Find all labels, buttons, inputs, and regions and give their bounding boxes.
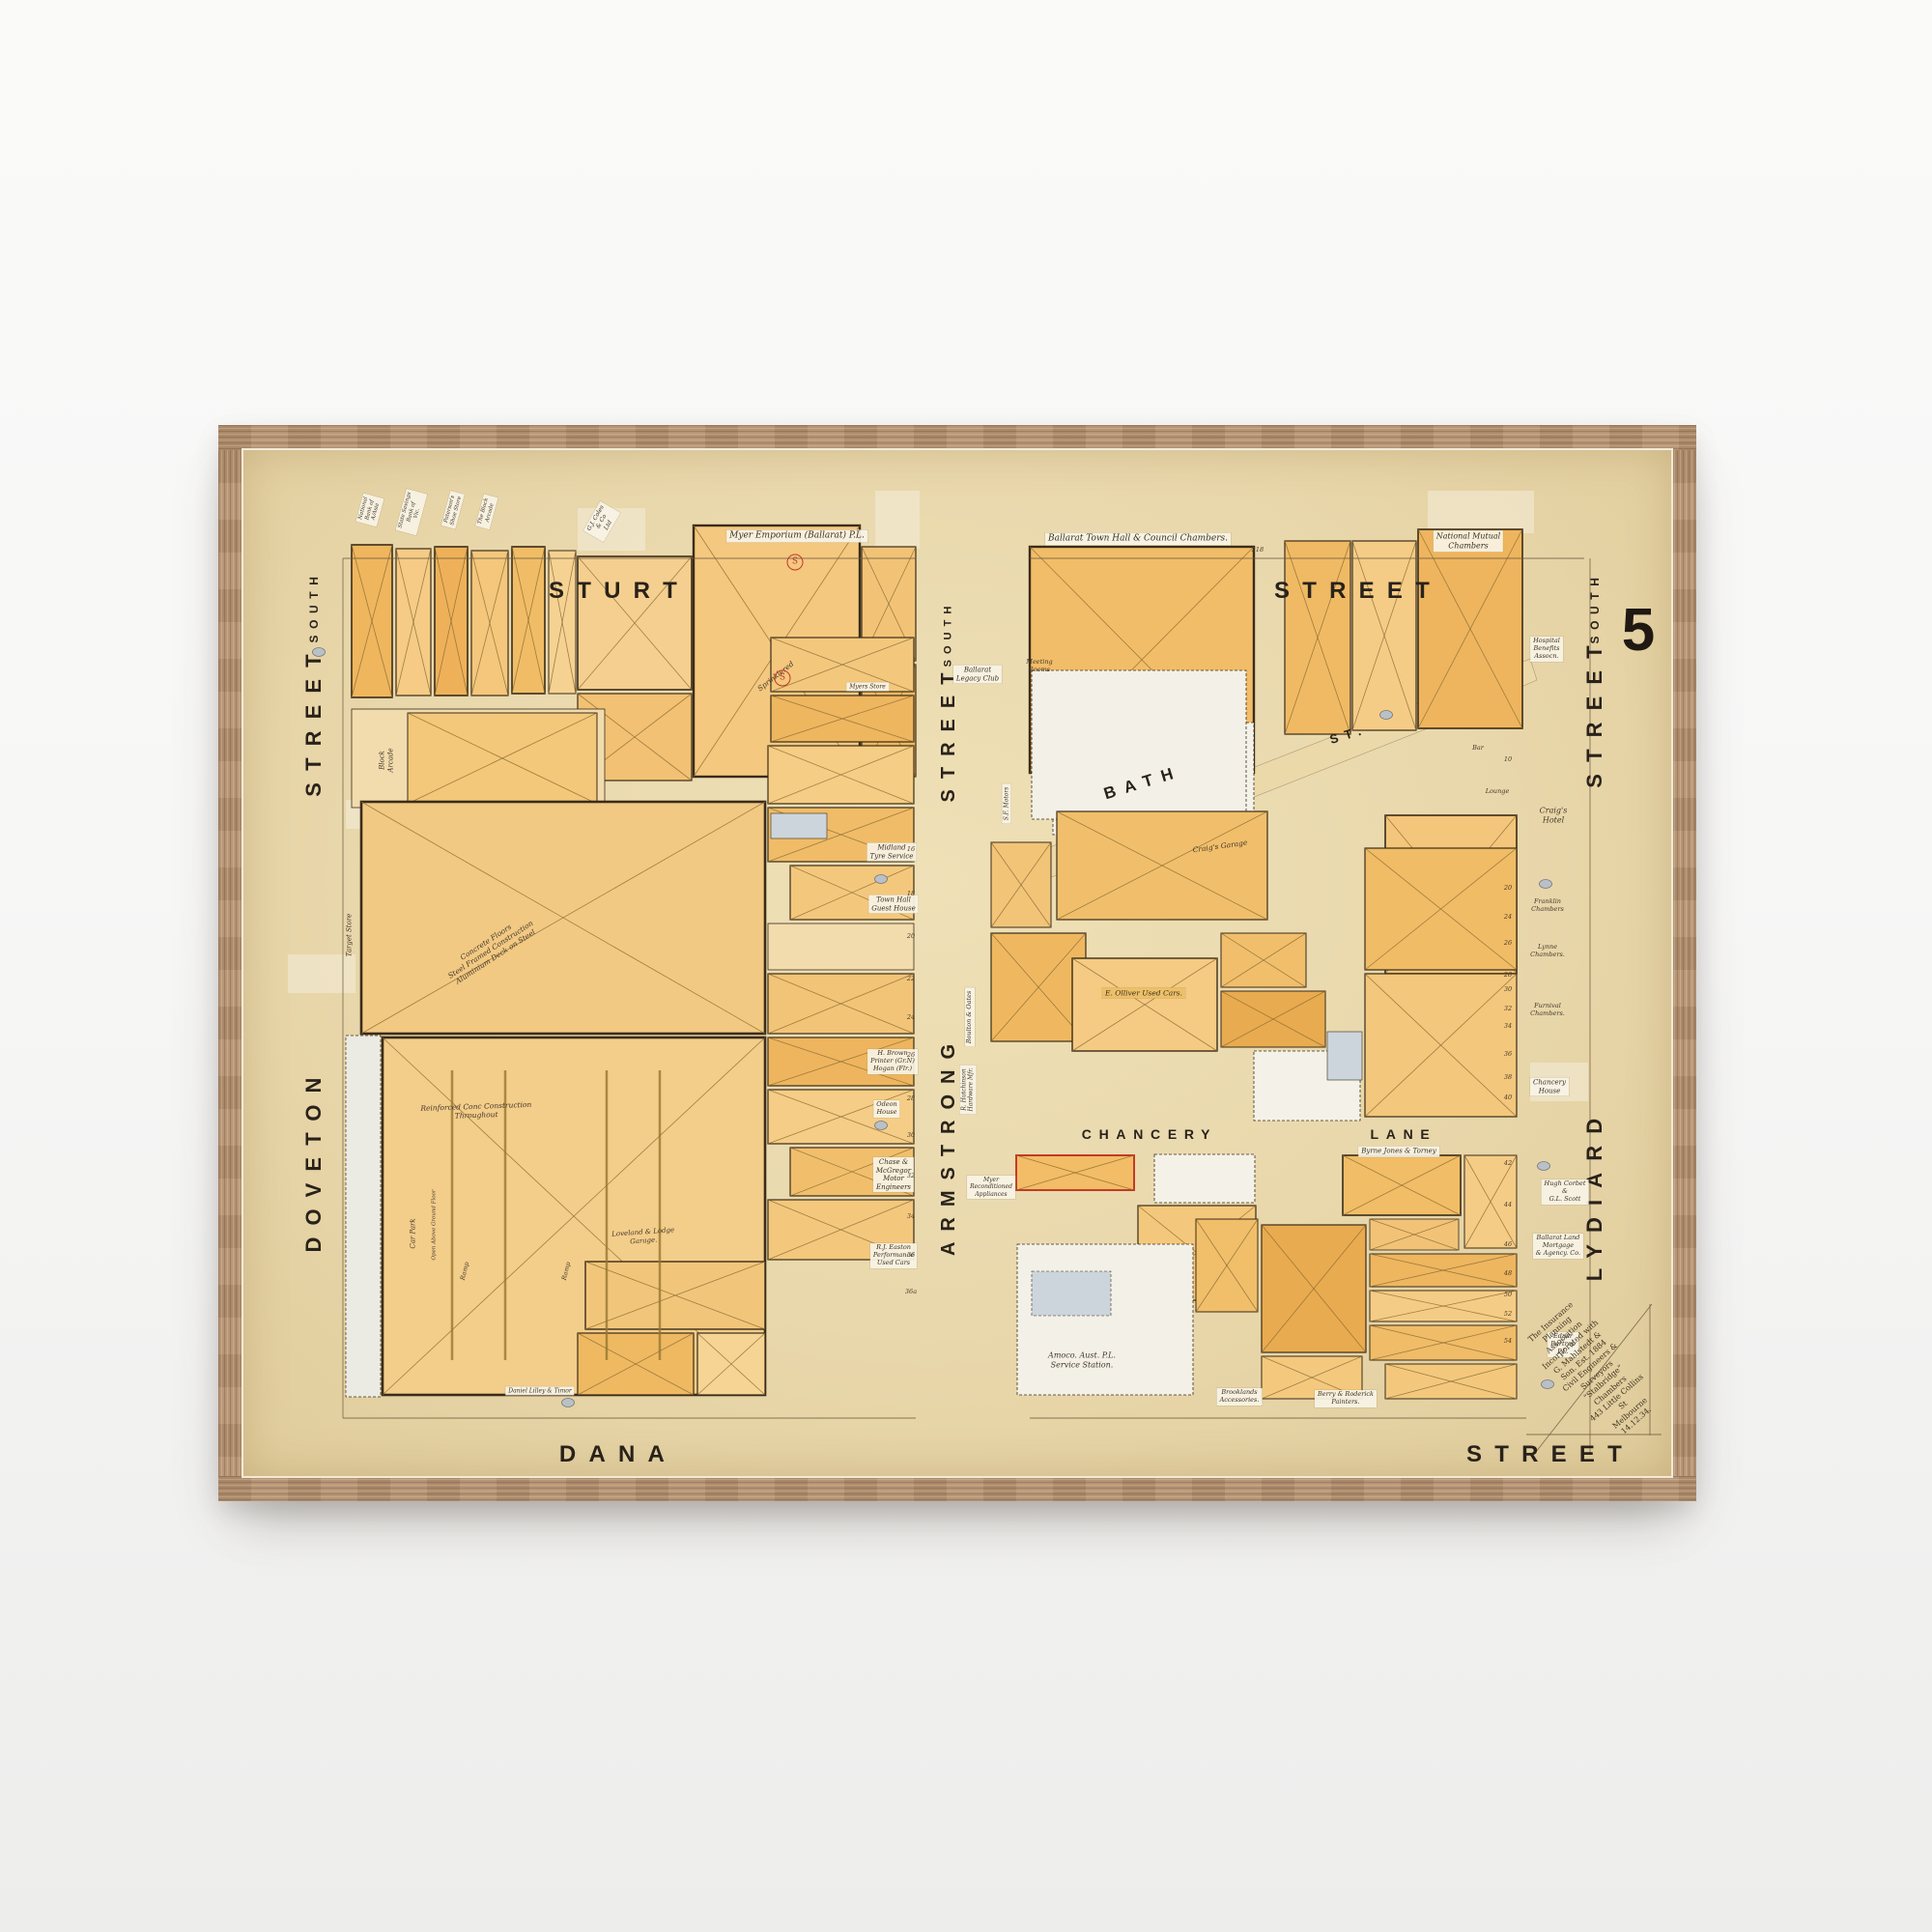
map-label: 16 xyxy=(907,846,915,854)
map-label: Craig's Garage xyxy=(1192,838,1248,855)
map-label: 54 xyxy=(1504,1338,1512,1346)
street-armstrong: ARMSTRONG xyxy=(939,1034,958,1256)
map-label: Lynne Chambers. xyxy=(1530,944,1565,959)
map-label: 42 xyxy=(1504,1160,1512,1168)
map-label: Myer Reconditioned Appliances xyxy=(967,1176,1015,1199)
map-label: 36 xyxy=(907,1252,915,1260)
map-label: Lounge xyxy=(1486,788,1510,796)
street-doveton: DOVETON xyxy=(303,1065,325,1252)
street-right-street: STREET xyxy=(1584,634,1605,787)
map-label: Bar xyxy=(1472,745,1484,753)
map-label: Open Above Ground Floor xyxy=(432,1189,439,1260)
map-label: Hugh Corbet & G.L. Scott xyxy=(1542,1179,1589,1205)
map-label: Hospital Benefits Assocn. xyxy=(1530,637,1563,662)
map-label: 22 xyxy=(907,976,915,983)
map-label: Brooklands Accessories. xyxy=(1217,1388,1263,1406)
map-label: 44 xyxy=(1504,1202,1512,1209)
frame-top xyxy=(218,425,1696,450)
surveyor-stamp: The Insurance Planning Association Incor… xyxy=(1519,1293,1669,1450)
map-label: 32 xyxy=(907,1173,915,1180)
street-chancery: CHANCERY xyxy=(1082,1127,1217,1141)
map-label: 24 xyxy=(907,1014,915,1022)
map-label: 32 xyxy=(1504,1006,1512,1013)
map-label: 34 xyxy=(1504,1023,1512,1031)
map-label: National Bank of A/Asia xyxy=(355,494,384,527)
map-label: Daniel Lilley & Timor xyxy=(505,1386,574,1395)
map-label: Ballarat Legacy Club xyxy=(953,665,1002,683)
map-label: Target Store xyxy=(346,914,355,957)
map-label: Car Park xyxy=(410,1218,418,1248)
street-bath-st: ST. xyxy=(1328,723,1369,746)
label-myer-emporium: Myer Emporium (Ballarat) P.L. xyxy=(726,530,867,543)
map-label: 26 xyxy=(907,1052,915,1060)
street-mid-south: SOUTH xyxy=(944,601,954,668)
map-label: 38 xyxy=(1504,1074,1512,1082)
map-label: G.J. Coles & Co Ltd xyxy=(583,501,620,542)
map-label: S.F. Motors xyxy=(1002,784,1010,824)
map-label: State Savings Bank of Vic. xyxy=(396,489,428,535)
map-label: Craig's Hotel xyxy=(1540,806,1568,825)
map-label: Ramp xyxy=(460,1262,471,1282)
map-labels-layer: STURTSTREETDANASTREETDOVETONSTREETSOUTHA… xyxy=(243,450,1671,1476)
map-label: 10 xyxy=(1504,756,1512,764)
map-label: Concrete Floors Steel Framed Constructio… xyxy=(441,911,539,987)
map-label: 20 xyxy=(1504,885,1512,893)
label-town-hall: Ballarat Town Hall & Council Chambers. xyxy=(1045,533,1231,546)
street-lane: LANE xyxy=(1371,1127,1437,1141)
map-label: Odeon House xyxy=(873,1100,899,1118)
map-label: Ramp xyxy=(561,1262,573,1282)
wall-background: STURTSTREETDANASTREETDOVETONSTREETSOUTHA… xyxy=(0,0,1932,1932)
street-left-street: STREET xyxy=(303,642,325,796)
map-label: 52 xyxy=(1504,1311,1512,1319)
map-label: Byrne Jones & Torney xyxy=(1358,1147,1439,1157)
map-label: 18 xyxy=(907,891,915,898)
map-label: S xyxy=(775,670,791,687)
map-label: 20 xyxy=(907,933,915,941)
frame-left xyxy=(218,450,243,1476)
map-label: 30 xyxy=(1504,986,1512,994)
map-label: E. Olliver Used Cars. xyxy=(1102,987,1185,998)
label-national-mutual: National Mutual Chambers xyxy=(1434,530,1503,552)
street-left-south: SOUTH xyxy=(308,571,320,643)
street-right-south: SOUTH xyxy=(1589,572,1601,644)
street-sturt: STURT xyxy=(549,580,690,603)
map-label: Myers Store xyxy=(846,682,889,691)
map-label: 46 xyxy=(1504,1241,1512,1249)
map-label: Boulton & Oates xyxy=(965,988,975,1047)
map-label: S xyxy=(787,554,804,571)
map-label: Block Arcade xyxy=(378,748,394,772)
frame-right xyxy=(1671,450,1696,1476)
map-label: Chancery House xyxy=(1530,1077,1569,1095)
map-label: 48 xyxy=(1504,1270,1512,1278)
street-dana: DANA xyxy=(559,1443,677,1466)
frame-bottom xyxy=(218,1476,1696,1501)
map-label: The Block Arcade xyxy=(475,495,498,530)
map-label: Paterson's Shoe Store xyxy=(441,491,465,529)
map-label: 30 xyxy=(907,1132,915,1140)
map-label: 36a xyxy=(905,1289,917,1296)
map-label: 50 xyxy=(1504,1292,1512,1299)
map-label: 28 xyxy=(1504,972,1512,980)
map-label: Franklin Chambers xyxy=(1531,898,1564,914)
map-label: R. Hutchinson Hardware Mfr. xyxy=(960,1065,977,1114)
street-bath: BATH xyxy=(1102,763,1184,803)
map-label: 26 xyxy=(1504,940,1512,948)
plate-number: 5 xyxy=(1622,594,1655,668)
map-label: Berry & Roderick Painters. xyxy=(1315,1390,1377,1407)
map-label: 218 xyxy=(1252,547,1264,554)
map-label: Furnival Chambers. xyxy=(1530,1003,1565,1018)
street-top-street: STREET xyxy=(1274,580,1442,603)
framed-print: STURTSTREETDANASTREETDOVETONSTREETSOUTHA… xyxy=(218,425,1696,1501)
map-label: 34 xyxy=(907,1213,915,1221)
map-label: Reinforced Conc Construction Throughout xyxy=(420,1100,532,1122)
map-label: 28 xyxy=(907,1095,915,1103)
map-label: Meeting Rooms xyxy=(1026,659,1052,674)
map-label: Amoco. Aust. P.L. Service Station. xyxy=(1048,1350,1116,1370)
map-paper: STURTSTREETDANASTREETDOVETONSTREETSOUTHA… xyxy=(243,450,1671,1476)
map-label: Loveland & Lodge Garage. xyxy=(611,1226,675,1247)
map-label: 36 xyxy=(1504,1051,1512,1059)
map-label: 24 xyxy=(1504,914,1512,922)
map-label: Ballarat Land Mortgage & Agency. Co. xyxy=(1533,1234,1583,1259)
map-label: 40 xyxy=(1504,1094,1512,1102)
